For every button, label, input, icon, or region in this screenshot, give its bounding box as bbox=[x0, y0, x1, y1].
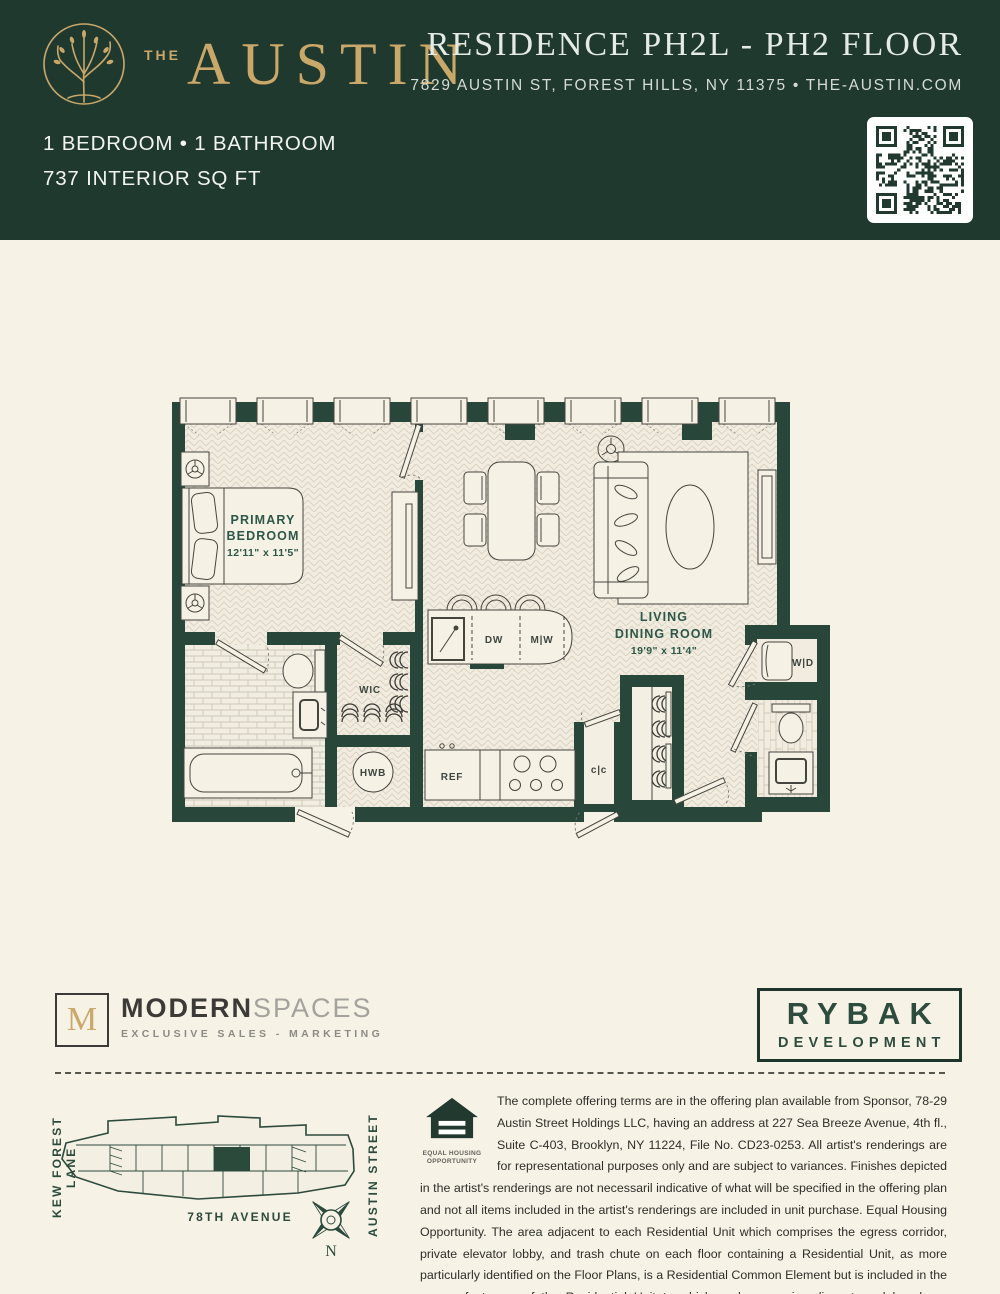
wd-closet bbox=[762, 642, 792, 680]
brand-logo: THE AUSTIN bbox=[40, 20, 473, 108]
modern-spaces-wordmark: MODERN SPACES EXCLUSIVE SALES - MARKETIN… bbox=[121, 993, 383, 1040]
dining-table bbox=[488, 462, 535, 560]
toilet-bowl bbox=[779, 713, 803, 743]
unit-location-marker bbox=[214, 1147, 250, 1171]
square-footage: 737 INTERIOR SQ FT bbox=[43, 167, 336, 191]
cc-label: c|c bbox=[591, 765, 607, 776]
eho-label-1: EQUAL HOUSING bbox=[420, 1150, 484, 1158]
dashed-divider bbox=[55, 1072, 945, 1074]
nightstand bbox=[181, 586, 209, 620]
equal-housing-logo: EQUAL HOUSING OPPORTUNITY bbox=[420, 1096, 484, 1166]
wic-label: WIC bbox=[359, 685, 381, 696]
development-word: DEVELOPMENT bbox=[773, 1035, 946, 1051]
tree-medallion-icon bbox=[40, 20, 128, 108]
legal-disclaimer: EQUAL HOUSING OPPORTUNITY The complete o… bbox=[420, 1091, 947, 1294]
living-dining-dims: 19'9" x 11'4" bbox=[631, 645, 697, 657]
rybak-development-logo: RYBAK DEVELOPMENT bbox=[757, 988, 962, 1062]
hwb-label: HWB bbox=[360, 768, 386, 779]
disclaimer-text: The complete offering terms are in the o… bbox=[420, 1094, 947, 1294]
bed-bath-count: 1 BEDROOM • 1 BATHROOM bbox=[43, 132, 336, 156]
brand-the: THE bbox=[144, 47, 181, 63]
modern-spaces-monogram: M bbox=[55, 993, 109, 1047]
primary-bedroom-label-1: PRIMARY bbox=[231, 513, 296, 527]
modern-spaces-tagline: EXCLUSIVE SALES - MARKETING bbox=[121, 1028, 383, 1040]
sofa bbox=[594, 462, 648, 598]
qr-code-graphic bbox=[876, 126, 964, 214]
qr-code bbox=[867, 117, 973, 223]
living-dining-label-2: DINING ROOM bbox=[615, 627, 713, 641]
console-table bbox=[758, 470, 776, 564]
address-line: 7829 AUSTIN ST, FOREST HILLS, NY 11375 •… bbox=[410, 77, 963, 95]
page-title: RESIDENCE PH2L - PH2 FLOOR bbox=[410, 26, 963, 64]
residence-heading: RESIDENCE PH2L - PH2 FLOOR 7829 AUSTIN S… bbox=[410, 26, 963, 95]
spaces-word: SPACES bbox=[253, 993, 373, 1024]
modern-spaces-logo: M MODERN SPACES EXCLUSIVE SALES - MARKET… bbox=[55, 993, 383, 1047]
primary-bedroom-label-2: BEDROOM bbox=[227, 529, 300, 543]
modern-word: MODERN bbox=[121, 993, 253, 1024]
living-dining-label-1: LIVING bbox=[640, 610, 688, 624]
floor-plan: PRIMARY BEDROOM 12'11" x 11'5" LIVING DI… bbox=[170, 392, 830, 855]
bathtub bbox=[184, 748, 312, 798]
street-label-kew-forest: KEW FOREST LANE bbox=[50, 1103, 78, 1231]
eho-label-2: OPPORTUNITY bbox=[420, 1158, 484, 1166]
island-sink bbox=[432, 618, 464, 660]
nightstand bbox=[181, 452, 209, 486]
mw-label: M|W bbox=[531, 635, 554, 646]
ref-label: REF bbox=[441, 772, 463, 783]
equal-housing-icon bbox=[424, 1096, 480, 1142]
unit-summary: 1 BEDROOM • 1 BATHROOM 737 INTERIOR SQ F… bbox=[43, 132, 336, 191]
flyer-page: THE AUSTIN RESIDENCE PH2L - PH2 FLOOR 78… bbox=[0, 0, 1000, 1294]
header-band: THE AUSTIN RESIDENCE PH2L - PH2 FLOOR 78… bbox=[0, 0, 1000, 240]
toilet-tank bbox=[772, 704, 810, 712]
wardrobe bbox=[392, 492, 418, 600]
vanity-sink bbox=[293, 692, 327, 738]
rybak-word: RYBAK bbox=[773, 996, 946, 1032]
floor-plan-drawing: PRIMARY BEDROOM 12'11" x 11'5" LIVING DI… bbox=[170, 392, 830, 850]
dw-label: DW bbox=[485, 635, 503, 646]
compass-north-label: N bbox=[317, 1243, 345, 1261]
street-label-austin: AUSTIN STREET bbox=[366, 1103, 380, 1248]
wd-label: W|D bbox=[792, 658, 814, 669]
primary-bedroom-dims: 12'11" x 11'5" bbox=[227, 547, 299, 559]
monogram-m: M bbox=[67, 1001, 97, 1039]
